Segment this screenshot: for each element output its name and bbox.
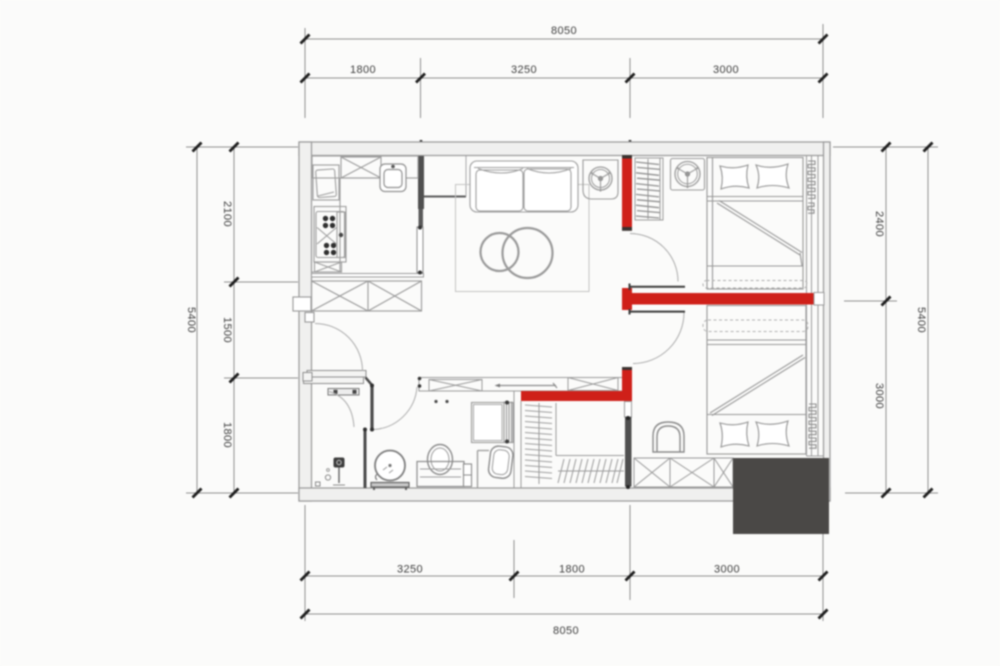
svg-text:1800: 1800 xyxy=(221,422,233,448)
svg-text:3000: 3000 xyxy=(873,383,885,409)
svg-text:2400: 2400 xyxy=(873,211,885,237)
svg-text:1500: 1500 xyxy=(221,317,233,343)
svg-text:8050: 8050 xyxy=(551,25,577,37)
svg-text:3250: 3250 xyxy=(397,564,423,576)
svg-text:3000: 3000 xyxy=(714,564,740,576)
svg-text:5400: 5400 xyxy=(185,307,197,333)
svg-text:1800: 1800 xyxy=(559,564,585,576)
svg-text:8050: 8050 xyxy=(553,625,579,637)
svg-text:1800: 1800 xyxy=(350,64,376,76)
svg-text:3000: 3000 xyxy=(713,64,739,76)
svg-text:5400: 5400 xyxy=(915,307,927,333)
svg-text:2100: 2100 xyxy=(221,201,233,227)
svg-text:3250: 3250 xyxy=(511,64,537,76)
